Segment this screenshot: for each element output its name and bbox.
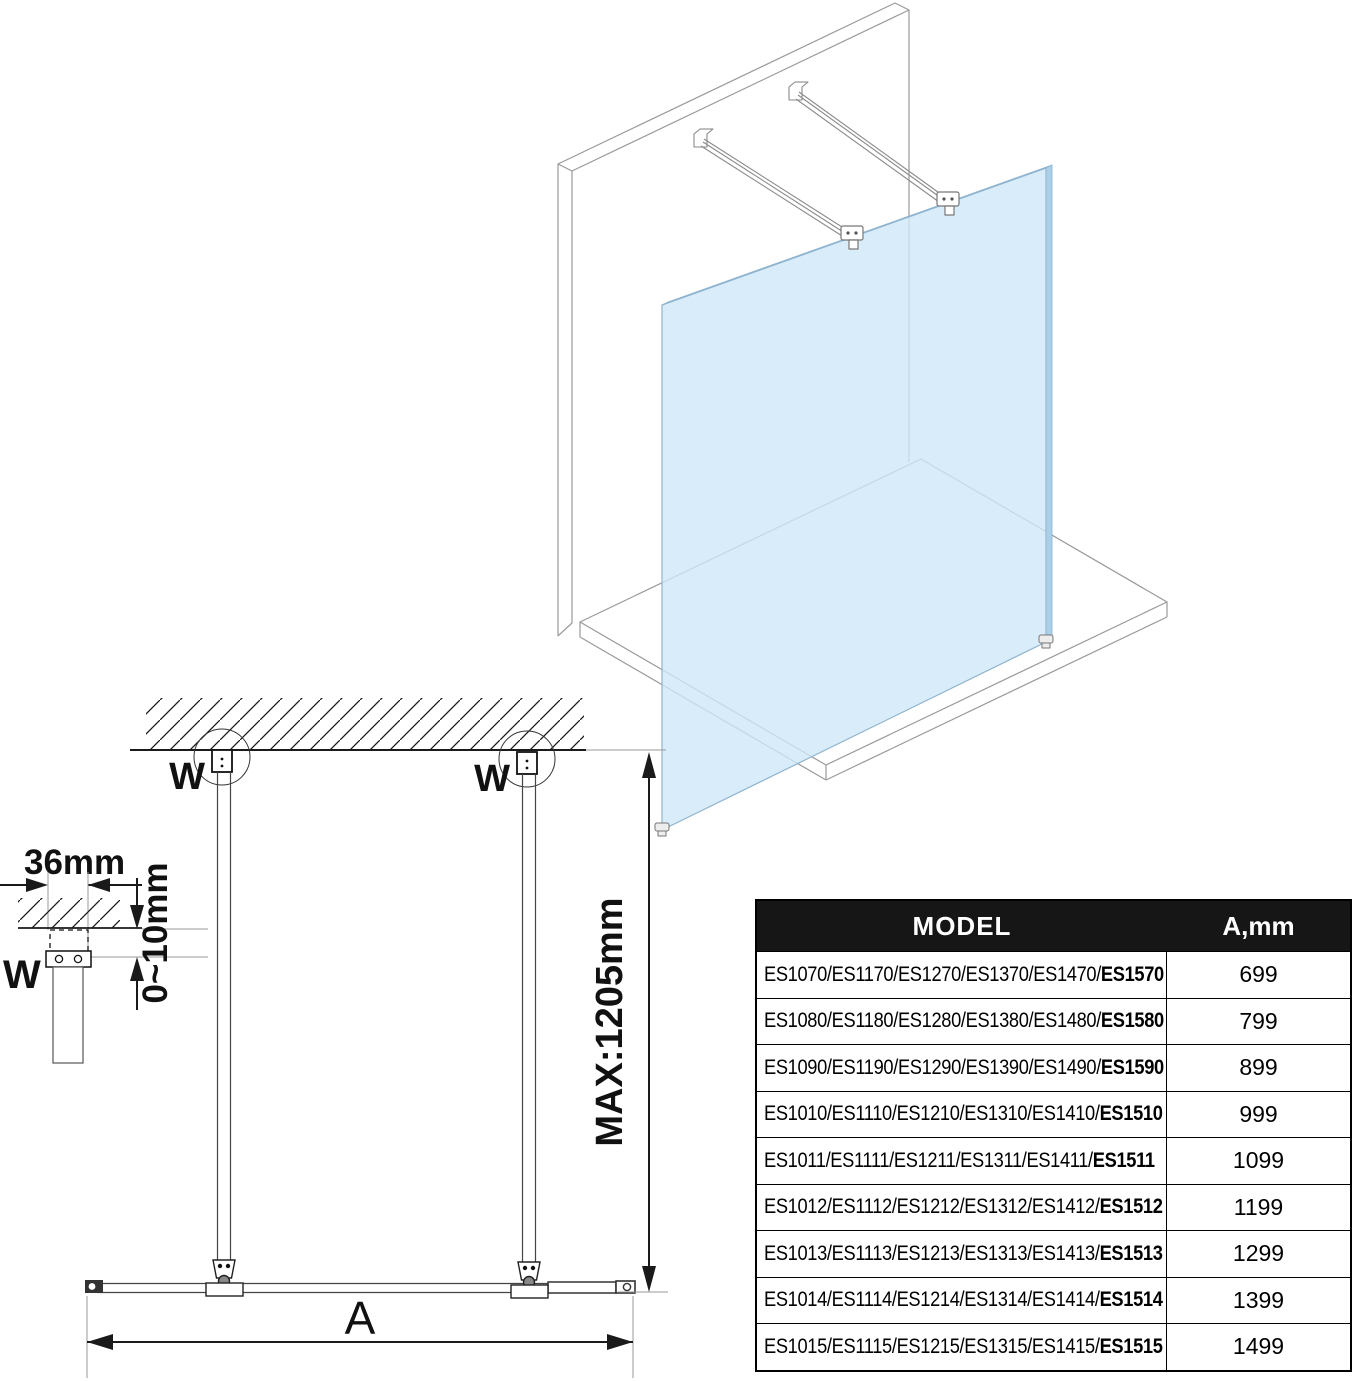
table-row: ES1080/ES1180/ES1280/ES1380/ES1480/ES158… xyxy=(757,998,1350,1045)
dimension-max-height: MAX:1205mm xyxy=(589,752,668,1292)
dim-36mm-label: 36mm xyxy=(24,843,125,882)
ceiling-bracket-right xyxy=(517,752,537,774)
wall-fixing-label-left: W xyxy=(169,756,205,798)
glass-foot-left-3d xyxy=(655,823,669,836)
table-header-row: MODEL A,mm xyxy=(757,901,1350,951)
detail-bar xyxy=(53,967,83,1063)
bar-clamp-left-2d xyxy=(206,1260,243,1296)
glass-foot-right-3d xyxy=(1039,635,1053,648)
dim-max-label: MAX:1205mm xyxy=(589,897,631,1146)
a-mm-value: 1499 xyxy=(1167,1333,1350,1360)
glass-right-edge xyxy=(1046,165,1052,642)
glass-face xyxy=(662,168,1046,830)
wall-bracket-icon xyxy=(789,82,808,100)
table-row: ES1070/ES1170/ES1270/ES1370/ES1470/ES157… xyxy=(757,951,1350,998)
detail-wall-hatch xyxy=(18,898,120,928)
model-codes: ES1013/ES1113/ES1213/ES1313/ES1413/ES151… xyxy=(764,1242,1163,1266)
a-mm-value: 999 xyxy=(1167,1101,1350,1128)
support-bar-rear-3d xyxy=(789,82,949,207)
model-codes: ES1012/ES1112/ES1212/ES1312/ES1412/ES151… xyxy=(764,1195,1163,1219)
support-bar-front-3d xyxy=(694,129,853,241)
table-row: ES1010/ES1110/ES1210/ES1310/ES1410/ES151… xyxy=(757,1091,1350,1138)
bar-endcap-right-2d xyxy=(616,1281,635,1293)
model-codes: ES1014/ES1114/ES1214/ES1314/ES1414/ES151… xyxy=(764,1288,1163,1312)
wall-fixing-label-right: W xyxy=(474,758,510,800)
technical-diagram-page: W W xyxy=(0,0,1353,1381)
a-mm-value: 1299 xyxy=(1167,1240,1350,1267)
model-codes: ES1010/ES1110/ES1210/ES1310/ES1410/ES151… xyxy=(764,1102,1163,1126)
dimension-a: A xyxy=(87,1292,633,1378)
a-mm-value: 699 xyxy=(1167,961,1350,988)
dim-0-10mm-label: 0~10mm xyxy=(136,862,175,1003)
wall-top-face xyxy=(558,3,909,171)
table-row: ES1012/ES1112/ES1212/ES1312/ES1412/ES151… xyxy=(757,1184,1350,1231)
table-header-model: MODEL xyxy=(757,911,1167,942)
table-row: ES1014/ES1114/ES1214/ES1314/ES1414/ES151… xyxy=(757,1277,1350,1324)
dimension-0-10mm: 0~10mm xyxy=(130,862,175,1010)
wall-bracket-icon xyxy=(694,129,713,147)
wall-hatch xyxy=(146,698,584,750)
bar-clamp-right-2d xyxy=(511,1262,548,1298)
model-codes: ES1080/ES1180/ES1280/ES1380/ES1480/ES158… xyxy=(764,1009,1164,1033)
a-mm-value: 1099 xyxy=(1167,1147,1350,1174)
wall-fixing-label-detail: W xyxy=(3,953,41,997)
a-mm-value: 1199 xyxy=(1167,1194,1350,1221)
table-row: ES1011/ES1111/ES1211/ES1311/ES1411/ES151… xyxy=(757,1137,1350,1184)
model-codes: ES1015/ES1115/ES1215/ES1315/ES1415/ES151… xyxy=(764,1335,1163,1359)
bar-endcap-left-2d xyxy=(85,1280,103,1293)
model-codes: ES1090/ES1190/ES1290/ES1390/ES1490/ES159… xyxy=(764,1056,1164,1080)
isometric-view xyxy=(558,3,1167,836)
a-mm-value: 1399 xyxy=(1167,1287,1350,1314)
model-codes: ES1011/ES1111/ES1211/ES1311/ES1411/ES151… xyxy=(764,1149,1155,1173)
table-header-a-mm: A,mm xyxy=(1167,911,1350,942)
support-bar-left-2d xyxy=(218,772,231,1260)
a-mm-value: 799 xyxy=(1167,1008,1350,1035)
model-codes: ES1070/ES1170/ES1270/ES1370/ES1470/ES157… xyxy=(764,963,1164,987)
glass-panel-3d xyxy=(662,165,1052,830)
model-size-table: MODEL A,mm ES1070/ES1170/ES1270/ES1370/E… xyxy=(755,899,1352,1372)
table-row: ES1090/ES1190/ES1290/ES1390/ES1490/ES159… xyxy=(757,1044,1350,1091)
table-row: ES1015/ES1115/ES1215/ES1315/ES1415/ES151… xyxy=(757,1323,1350,1370)
support-bar-right-2d xyxy=(523,774,536,1262)
a-mm-value: 899 xyxy=(1167,1054,1350,1081)
table-row: ES1013/ES1113/ES1213/ES1313/ES1413/ES151… xyxy=(757,1230,1350,1277)
bracket-detail-view: 36mm W 0~10mm xyxy=(0,843,208,1063)
ceiling-bracket-left xyxy=(212,750,232,772)
dim-a-label: A xyxy=(345,1292,376,1344)
plan-view: W W xyxy=(85,698,668,1378)
